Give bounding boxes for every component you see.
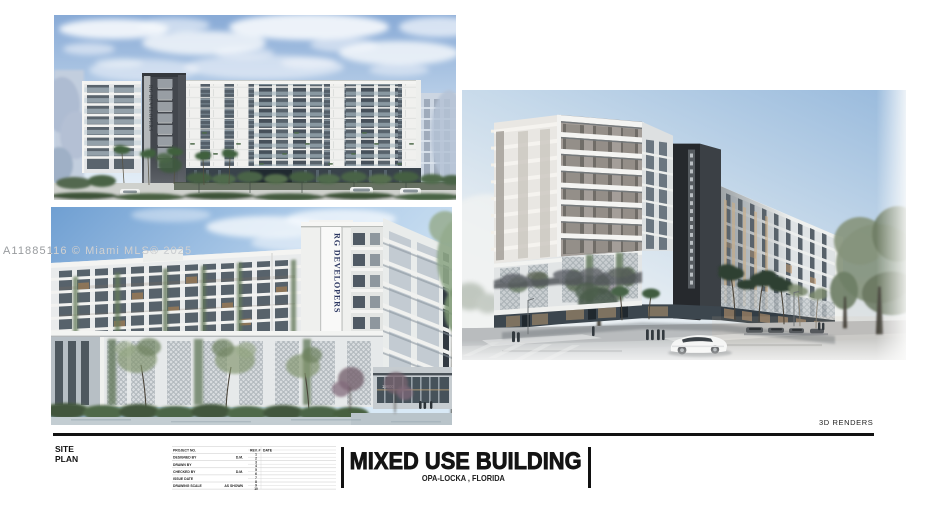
svg-text:D.M.: D.M. xyxy=(236,456,243,460)
svg-text:ISSUE DATE: ISSUE DATE xyxy=(173,477,194,481)
svg-text:RG DEVELOPERS: RG DEVELOPERS xyxy=(332,233,341,313)
svg-text:OPA-LOCKA , FLORIDA: OPA-LOCKA , FLORIDA xyxy=(422,473,505,483)
svg-text:10: 10 xyxy=(254,487,258,490)
svg-text:PROJECT NO.: PROJECT NO. xyxy=(173,449,196,453)
svg-text:DRAWING SCALE: DRAWING SCALE xyxy=(173,484,203,488)
svg-text:RG DEVELOPERS: RG DEVELOPERS xyxy=(147,85,152,132)
svg-text:CHECKED BY: CHECKED BY xyxy=(173,470,196,474)
svg-text:DRAWN BY: DRAWN BY xyxy=(173,463,192,467)
svg-text:DATE: DATE xyxy=(263,449,273,453)
svg-text:MIXED USE BUILDING: MIXED USE BUILDING xyxy=(350,448,582,475)
svg-text:D.M.: D.M. xyxy=(236,470,243,474)
svg-text:DESIGNED BY: DESIGNED BY xyxy=(173,456,197,460)
svg-text:AS SHOWN: AS SHOWN xyxy=(224,484,243,488)
